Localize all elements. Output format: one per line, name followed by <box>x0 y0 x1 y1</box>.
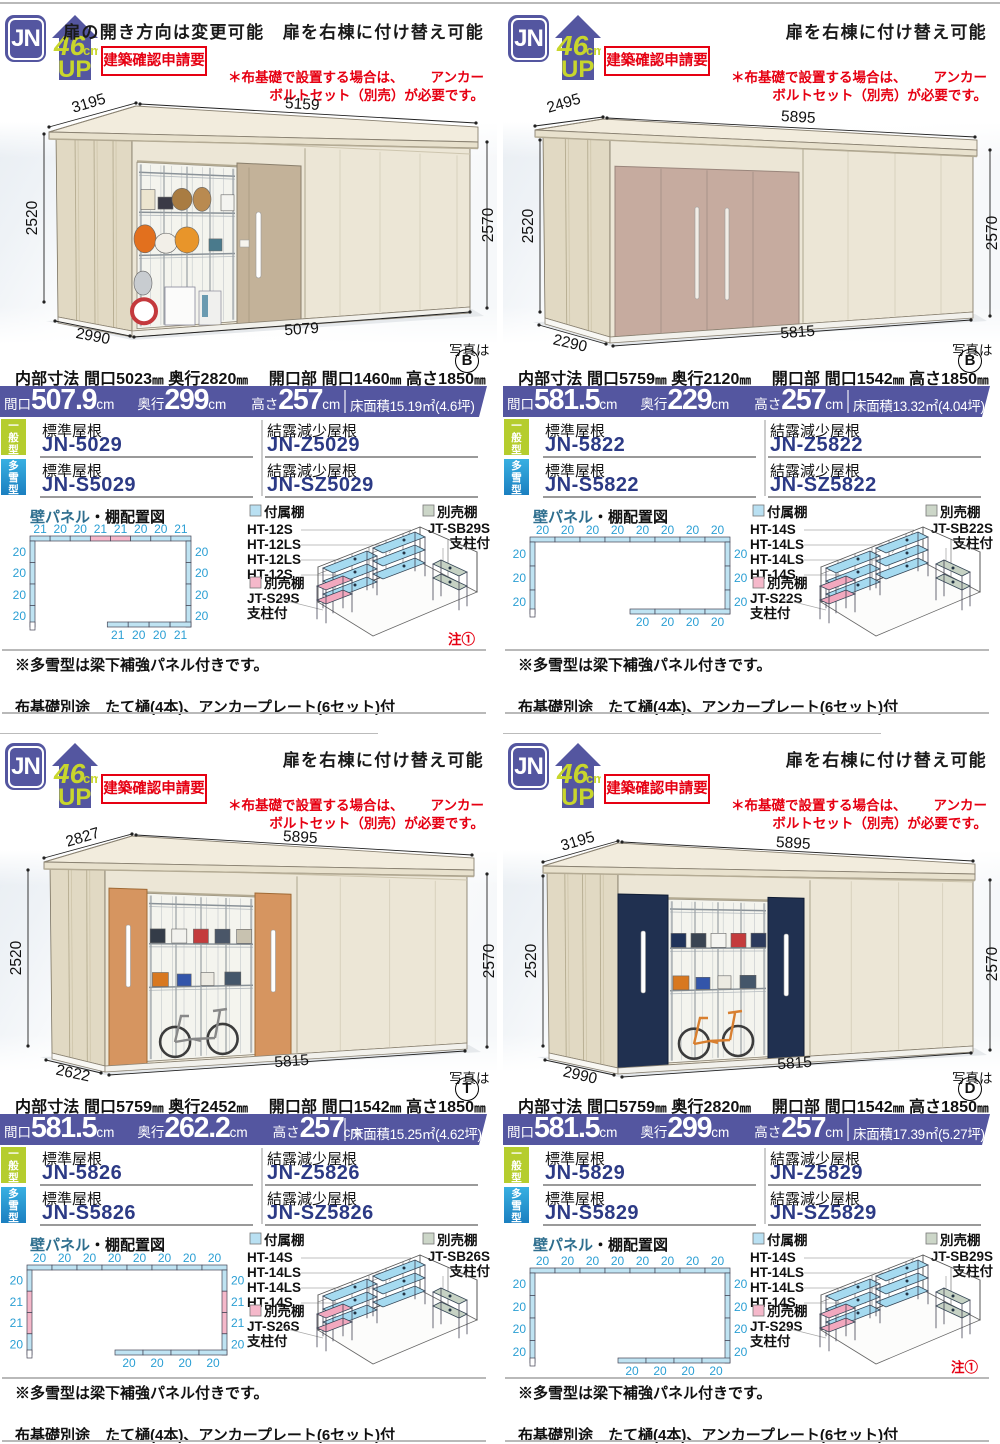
svg-text:2495: 2495 <box>545 91 583 117</box>
svg-text:UP: UP <box>58 784 91 809</box>
svg-text:20: 20 <box>178 1356 192 1370</box>
svg-text:20: 20 <box>122 1356 136 1370</box>
svg-text:20: 20 <box>686 615 700 629</box>
svg-text:20: 20 <box>611 1254 625 1268</box>
svg-text:21: 21 <box>10 1316 24 1330</box>
svg-text:21: 21 <box>94 522 108 536</box>
svg-text:2570: 2570 <box>481 943 498 978</box>
svg-text:20: 20 <box>536 523 550 537</box>
svg-text:2570: 2570 <box>480 207 497 242</box>
svg-text:5815: 5815 <box>274 1052 310 1071</box>
svg-text:2520: 2520 <box>520 208 537 243</box>
svg-text:20: 20 <box>83 1251 97 1265</box>
svg-text:HT-14S: HT-14S <box>247 1250 293 1265</box>
svg-text:20: 20 <box>13 545 27 559</box>
svg-text:20: 20 <box>58 1251 72 1265</box>
svg-text:支柱付: 支柱付 <box>749 1333 791 1349</box>
svg-text:JT-SB22S: JT-SB22S <box>931 521 993 536</box>
svg-text:2520: 2520 <box>523 943 540 978</box>
svg-text:別売棚: 別売棚 <box>940 1232 981 1248</box>
svg-text:5815: 5815 <box>780 323 816 342</box>
svg-text:2570: 2570 <box>984 946 1000 981</box>
svg-text:5159: 5159 <box>285 95 320 114</box>
svg-text:20: 20 <box>74 522 88 536</box>
svg-text:2520: 2520 <box>8 940 25 975</box>
svg-text:20: 20 <box>10 1337 24 1351</box>
svg-text:別売棚: 別売棚 <box>767 1303 808 1319</box>
svg-text:20: 20 <box>561 523 575 537</box>
svg-text:HT-14LS: HT-14LS <box>247 1265 301 1280</box>
svg-text:支柱付: 支柱付 <box>246 1333 288 1349</box>
svg-text:20: 20 <box>108 1251 122 1265</box>
svg-text:HT-14LS: HT-14LS <box>750 1280 804 1295</box>
svg-text:5895: 5895 <box>776 834 811 853</box>
svg-text:JT-SB29S: JT-SB29S <box>931 1249 993 1264</box>
svg-text:20: 20 <box>513 547 527 561</box>
svg-text:5895: 5895 <box>781 108 816 127</box>
svg-text:20: 20 <box>711 1254 725 1268</box>
svg-text:20: 20 <box>653 1364 667 1378</box>
svg-text:20: 20 <box>536 1254 550 1268</box>
svg-text:付属棚: 付属棚 <box>767 1232 808 1248</box>
svg-text:HT-14LS: HT-14LS <box>247 1280 301 1295</box>
svg-text:20: 20 <box>208 1251 222 1265</box>
svg-text:別売棚: 別売棚 <box>437 1232 478 1248</box>
svg-text:5079: 5079 <box>284 320 320 339</box>
svg-text:20: 20 <box>586 1254 600 1268</box>
svg-text:21: 21 <box>174 522 188 536</box>
svg-text:20: 20 <box>561 1254 575 1268</box>
svg-text:20: 20 <box>195 545 209 559</box>
svg-text:JT-SB29S: JT-SB29S <box>428 521 490 536</box>
svg-text:付属棚: 付属棚 <box>264 1232 305 1248</box>
svg-text:21: 21 <box>174 628 188 642</box>
svg-text:20: 20 <box>54 522 68 536</box>
svg-text:HT-14S: HT-14S <box>750 1250 796 1265</box>
svg-text:20: 20 <box>134 522 148 536</box>
svg-text:UP: UP <box>561 784 594 809</box>
svg-text:21: 21 <box>33 522 47 536</box>
svg-text:20: 20 <box>13 588 27 602</box>
svg-text:JT-S29S: JT-S29S <box>750 1319 803 1334</box>
svg-text:21: 21 <box>10 1295 24 1309</box>
svg-text:JT-S22S: JT-S22S <box>750 591 803 606</box>
svg-text:20: 20 <box>661 1254 675 1268</box>
svg-text:UP: UP <box>561 56 594 81</box>
svg-text:20: 20 <box>153 628 167 642</box>
svg-text:別売棚: 別売棚 <box>264 575 305 591</box>
svg-text:別売棚: 別売棚 <box>437 504 478 520</box>
svg-text:UP: UP <box>58 56 91 81</box>
svg-text:20: 20 <box>681 1364 695 1378</box>
svg-text:HT-14LS: HT-14LS <box>750 537 804 552</box>
svg-text:21: 21 <box>114 522 128 536</box>
svg-text:JT-S29S: JT-S29S <box>247 591 300 606</box>
svg-text:20: 20 <box>513 571 527 585</box>
svg-text:20: 20 <box>661 523 675 537</box>
svg-text:HT-12S: HT-12S <box>247 522 293 537</box>
svg-text:20: 20 <box>183 1251 197 1265</box>
svg-text:注①: 注① <box>951 1359 979 1375</box>
svg-text:HT-12LS: HT-12LS <box>247 537 301 552</box>
svg-text:20: 20 <box>636 615 650 629</box>
svg-text:20: 20 <box>150 1356 164 1370</box>
svg-text:20: 20 <box>661 615 675 629</box>
svg-text:21: 21 <box>111 628 125 642</box>
svg-text:20: 20 <box>586 523 600 537</box>
svg-text:20: 20 <box>625 1364 639 1378</box>
svg-text:20: 20 <box>195 566 209 580</box>
svg-text:注①: 注① <box>448 631 475 647</box>
svg-text:20: 20 <box>513 595 527 609</box>
svg-text:20: 20 <box>513 1300 527 1314</box>
svg-text:20: 20 <box>611 523 625 537</box>
svg-text:20: 20 <box>513 1322 527 1336</box>
svg-text:20: 20 <box>133 1251 147 1265</box>
svg-text:HT-14S: HT-14S <box>750 522 796 537</box>
svg-text:HT-14LS: HT-14LS <box>750 552 804 567</box>
svg-text:支柱付: 支柱付 <box>246 605 288 621</box>
svg-text:20: 20 <box>13 609 27 623</box>
svg-text:20: 20 <box>686 1254 700 1268</box>
svg-text:付属棚: 付属棚 <box>767 504 808 520</box>
svg-text:20: 20 <box>158 1251 172 1265</box>
svg-text:HT-12LS: HT-12LS <box>247 552 301 567</box>
svg-text:20: 20 <box>13 566 27 580</box>
svg-text:20: 20 <box>33 1251 47 1265</box>
svg-text:JT-S26S: JT-S26S <box>247 1319 300 1334</box>
svg-text:20: 20 <box>154 522 168 536</box>
svg-text:20: 20 <box>206 1356 220 1370</box>
svg-text:20: 20 <box>513 1277 527 1291</box>
svg-text:20: 20 <box>636 1254 650 1268</box>
svg-text:5895: 5895 <box>283 828 318 847</box>
svg-text:20: 20 <box>513 1345 527 1359</box>
svg-text:JT-SB26S: JT-SB26S <box>428 1249 490 1264</box>
svg-text:支柱付: 支柱付 <box>749 605 791 621</box>
svg-text:5815: 5815 <box>777 1054 813 1073</box>
svg-text:20: 20 <box>711 615 725 629</box>
svg-text:20: 20 <box>711 523 725 537</box>
svg-text:HT-14LS: HT-14LS <box>750 1265 804 1280</box>
svg-text:20: 20 <box>686 523 700 537</box>
svg-text:20: 20 <box>636 523 650 537</box>
svg-text:別売棚: 別売棚 <box>264 1303 305 1319</box>
svg-text:20: 20 <box>709 1364 723 1378</box>
svg-text:20: 20 <box>195 588 209 602</box>
svg-text:2520: 2520 <box>24 200 41 235</box>
svg-text:20: 20 <box>195 609 209 623</box>
svg-text:20: 20 <box>132 628 146 642</box>
svg-text:付属棚: 付属棚 <box>264 504 305 520</box>
svg-text:別売棚: 別売棚 <box>940 504 981 520</box>
svg-text:20: 20 <box>10 1274 24 1288</box>
svg-text:別売棚: 別売棚 <box>767 575 808 591</box>
svg-text:2570: 2570 <box>984 215 1000 250</box>
